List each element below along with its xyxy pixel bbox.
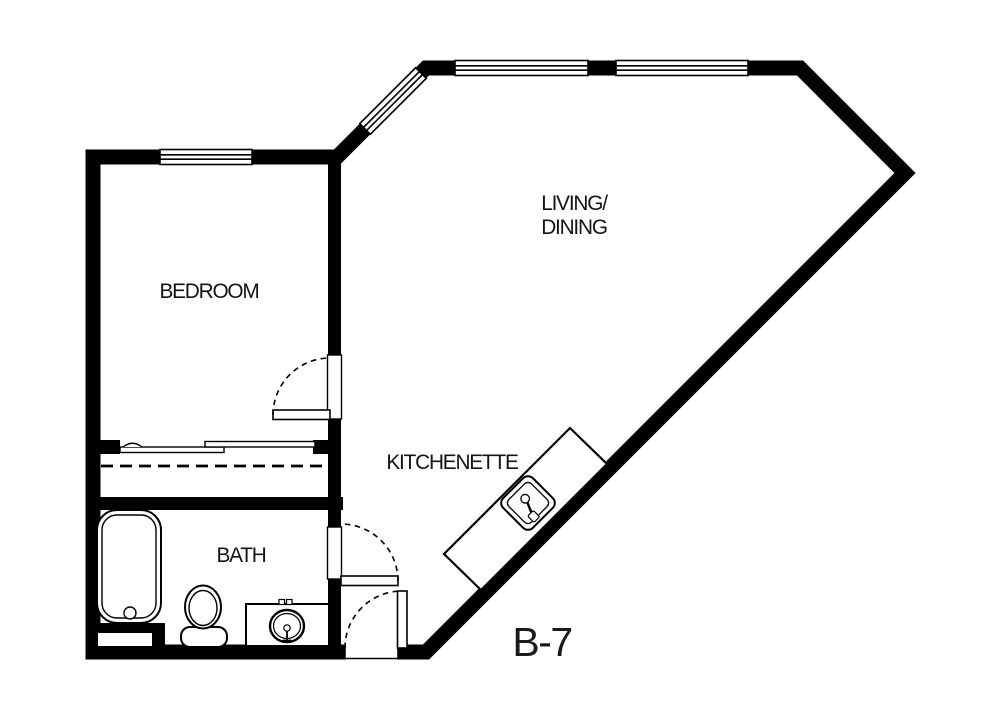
sliding-door-panel-left [120,447,224,453]
living-label-line2: DINING [541,216,607,240]
closet-bath-divider-wall [86,497,343,510]
bedroom-east-wall-upper [328,152,341,355]
bedroom-label: BEDROOM [159,280,258,304]
living-north-window-right [616,61,748,76]
bath-label: BATH [216,544,265,568]
floor-plan-canvas: BEDROOM LIVING/ DINING KITCHENETTE BATH … [0,0,997,721]
bath-door-leaf [341,576,398,586]
entry-door-opening [345,644,398,660]
living-dining-label: LIVING/ DINING [541,192,607,240]
living-label-line1: LIVING/ [541,192,607,216]
living-north-window-left [455,61,588,76]
bedroom-east-wall-lower [328,419,341,527]
unit-number-label: B-7 [512,622,571,663]
sliding-door-panel-right [205,442,315,448]
closet-wall-left [88,440,120,454]
tub-deck-niche [98,633,152,646]
bathtub-icon [97,510,161,623]
entry-door-leaf [398,591,408,648]
bedroom-door-leaf [273,410,330,420]
kitchenette-label: KITCHENETTE [386,451,517,475]
floor-plan-drawing [0,0,997,721]
bedroom-window [160,150,252,165]
bath-door-jamb [328,527,342,579]
vanity-sink-icon [246,600,329,647]
